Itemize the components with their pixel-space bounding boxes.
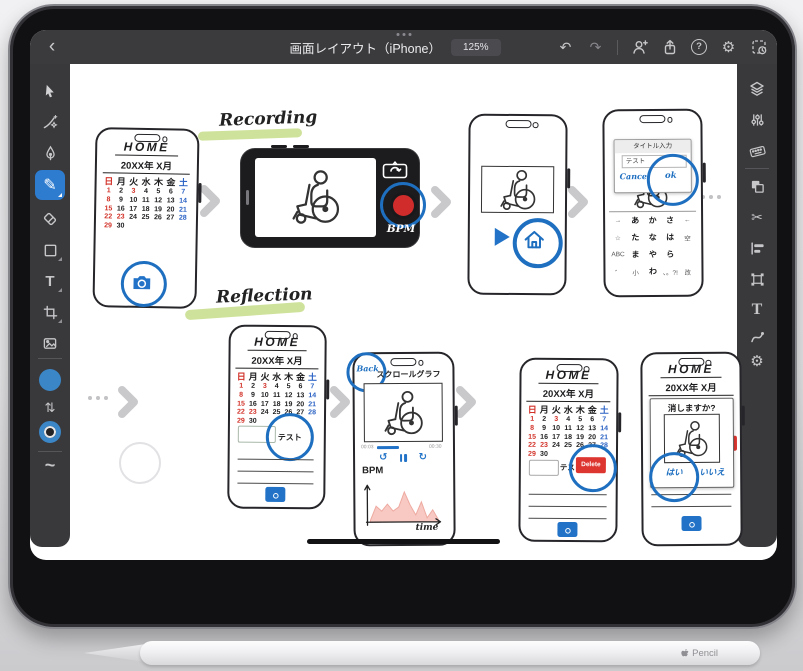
- volume-button: [293, 145, 309, 148]
- flip-camera-icon: [382, 161, 408, 179]
- undo-icon[interactable]: ↶: [557, 39, 574, 56]
- phone-side-button: [567, 168, 570, 188]
- sketch-delete-screen: HOME20XX年 X月日月火水木金土123456789101112131415…: [518, 358, 618, 543]
- sketch-home-screen: HOME20XX年 X月日月火水木金土123456789101112131415…: [92, 127, 199, 309]
- sketch-calendar: HOME20XX年 X月日月火水木金土123456789101112131415…: [102, 139, 191, 232]
- combine-icon[interactable]: [748, 177, 766, 195]
- flow-arrow-icon: [456, 386, 476, 423]
- align-icon[interactable]: [748, 239, 766, 257]
- bpm-label: BPM: [382, 223, 420, 235]
- wheelchair-sketch: [285, 169, 347, 225]
- flow-arrow-icon: [118, 386, 138, 423]
- highlight-circle: [513, 218, 563, 268]
- sketch-playback-screen: [467, 114, 567, 296]
- select-tool-icon[interactable]: [41, 82, 59, 100]
- redo-icon[interactable]: ↷: [587, 39, 604, 56]
- highlight-circle: テスト: [266, 413, 314, 461]
- transform-icon[interactable]: [748, 270, 766, 288]
- record-button: [390, 192, 417, 219]
- app-screen: ‹ 画面レイアウト（iPhone） 125% ↶ ↷ ? ⚙: [30, 30, 777, 560]
- fill-color-swatch[interactable]: [39, 369, 61, 391]
- list-row-line: [238, 459, 314, 461]
- invite-user-icon[interactable]: [631, 39, 648, 56]
- phone-notch: [639, 115, 665, 123]
- phone-side-button: [702, 163, 705, 183]
- back-button[interactable]: ‹: [40, 35, 64, 59]
- bpm-graph: [360, 474, 444, 529]
- sketch-title-input-screen: タイトル入力 テスト Cancel ok →あかさ←☆たなは空ABCまやら゛小わ…: [602, 109, 703, 298]
- help-icon[interactable]: ?: [691, 39, 707, 55]
- phone-side-button: [198, 183, 201, 203]
- graph-screen-title: スクロールグラフ: [376, 369, 446, 380]
- apple-logo-icon: [681, 649, 689, 658]
- kana-keyboard[interactable]: →あかさ←☆たなは空ABCまやら゛小わ、。?!改: [609, 211, 697, 287]
- forward-icon[interactable]: ↻: [419, 452, 427, 463]
- sketch-camera-screen: BPM: [240, 148, 420, 248]
- keyboard-icon[interactable]: [748, 142, 766, 160]
- replay-icon[interactable]: ↺: [379, 452, 387, 463]
- no-button[interactable]: いいえ: [696, 466, 728, 478]
- zoom-level-button[interactable]: 125%: [451, 39, 501, 56]
- properties-icon[interactable]: [748, 111, 766, 129]
- play-icon: [495, 228, 510, 246]
- document-title: 画面レイアウト（iPhone）: [290, 38, 441, 57]
- topbar-divider: [617, 40, 618, 55]
- toolbar-divider: [38, 358, 62, 359]
- crop-tool-icon[interactable]: [41, 303, 59, 321]
- pause-icon[interactable]: [400, 453, 407, 461]
- phone-side-button: [454, 406, 457, 426]
- highlight-circle: [569, 444, 617, 492]
- type-styles-icon[interactable]: T: [748, 301, 766, 319]
- toolbar-divider: [745, 168, 769, 169]
- video-thumbnail: [481, 166, 554, 214]
- camera-icon: [561, 524, 574, 534]
- right-toolbar: ✂ T ⚙: [737, 64, 777, 547]
- type-tool-icon[interactable]: T: [41, 272, 59, 290]
- wheelchair-sketch: [378, 389, 428, 435]
- camera-button: [681, 516, 701, 531]
- highlight-circle: [647, 154, 699, 206]
- recording-flow-label: Recording: [219, 107, 318, 130]
- phone-notch: [505, 120, 531, 128]
- wheelchair-sketch: [494, 168, 540, 210]
- camera-icon: [269, 489, 282, 499]
- shape-tool-icon[interactable]: [41, 241, 59, 259]
- list-row-line: [651, 506, 731, 508]
- progress-bar[interactable]: [377, 446, 399, 449]
- phone-side-button: [326, 379, 329, 399]
- sketch-home-input-screen: HOME20XX年 X月日月火水木金土123456789101112131415…: [227, 325, 327, 510]
- toolbar-divider: [38, 451, 62, 452]
- lasso-tool-icon[interactable]: [41, 113, 59, 131]
- home-icon: [522, 228, 545, 251]
- text-input-box[interactable]: [529, 460, 559, 476]
- apple-pencil-tip: [84, 644, 146, 662]
- scissors-icon[interactable]: ✂: [748, 208, 766, 226]
- ellipsis-icon: [701, 195, 721, 199]
- test-input-value: テスト: [278, 432, 302, 443]
- pen-tool-icon[interactable]: [41, 144, 59, 162]
- apple-pencil: Pencil: [140, 641, 760, 665]
- flow-arrow-icon: [330, 386, 350, 423]
- sketch-confirm-screen: HOME20XX年 X月日月火水木金土123456789101112131415…: [640, 352, 742, 547]
- highlight-circle: [380, 182, 426, 228]
- ellipsis-icon: [88, 396, 108, 400]
- share-icon[interactable]: [661, 39, 678, 56]
- phone-side-button: [618, 412, 621, 432]
- layers-icon[interactable]: [748, 80, 766, 98]
- left-toolbar: ✎ T ⇅ ~: [30, 64, 70, 547]
- camera-icon: [685, 518, 698, 528]
- camera-icon: [132, 275, 152, 290]
- image-tool-icon[interactable]: [41, 334, 59, 352]
- list-row-line: [529, 494, 607, 496]
- list-row-line: [529, 518, 607, 520]
- confirm-question: 消しますか?: [651, 402, 733, 415]
- time-elapsed: 00:03: [361, 444, 374, 450]
- app-topbar: ‹ 画面レイアウト（iPhone） 125% ↶ ↷ ? ⚙: [30, 30, 777, 64]
- eraser-tool-icon[interactable]: [41, 210, 59, 228]
- ipad-device: ‹ 画面レイアウト（iPhone） 125% ↶ ↷ ? ⚙: [8, 4, 797, 629]
- dialog-title: タイトル入力: [615, 140, 691, 154]
- list-row-line: [237, 483, 313, 485]
- list-row-line: [529, 506, 607, 508]
- flow-arrow-icon: [200, 185, 220, 222]
- canvas-settings-gear-icon[interactable]: ⚙: [748, 352, 766, 370]
- pencil-tool-icon-active[interactable]: ✎: [35, 170, 65, 200]
- pencil-label: Pencil: [692, 648, 718, 659]
- camera-button: [557, 522, 577, 537]
- back-button-label[interactable]: Back: [356, 363, 378, 373]
- highlight-circle: [649, 452, 699, 502]
- list-row-line: [238, 471, 314, 473]
- drawing-canvas[interactable]: Recording Reflection HOME20XX年 X月日月火水木金土…: [70, 64, 737, 560]
- flow-arrow-icon: [431, 186, 451, 223]
- home-indicator[interactable]: [307, 539, 500, 544]
- faint-circle-doodle: [119, 442, 161, 484]
- video-thumbnail: [364, 383, 443, 443]
- sketch-calendar: HOME20XX年 X月日月火水木金土123456789101112131415…: [235, 335, 319, 428]
- graph-x-label: time: [416, 523, 439, 533]
- speaker-slot: [246, 190, 249, 205]
- version-history-icon[interactable]: [750, 39, 767, 56]
- recording-highlight: [198, 128, 302, 141]
- sketch-graph-screen: Back スクロールグラフ 00:03 00:30 ↺ ↻ BPM: [352, 352, 455, 547]
- phone-side-button: [741, 406, 744, 426]
- settings-gear-icon[interactable]: ⚙: [720, 39, 737, 56]
- camera-button: [265, 487, 285, 502]
- volume-button: [271, 145, 287, 148]
- highlight-circle: [120, 261, 167, 308]
- smooth-tool-icon[interactable]: ~: [41, 456, 59, 474]
- phone-notch: [390, 358, 416, 366]
- stroke-color-swatch[interactable]: [39, 421, 61, 443]
- swap-colors-icon[interactable]: ⇅: [41, 399, 59, 417]
- flow-arrow-icon: [568, 186, 588, 223]
- time-total: 00:30: [429, 444, 442, 450]
- curve-icon[interactable]: [748, 328, 766, 346]
